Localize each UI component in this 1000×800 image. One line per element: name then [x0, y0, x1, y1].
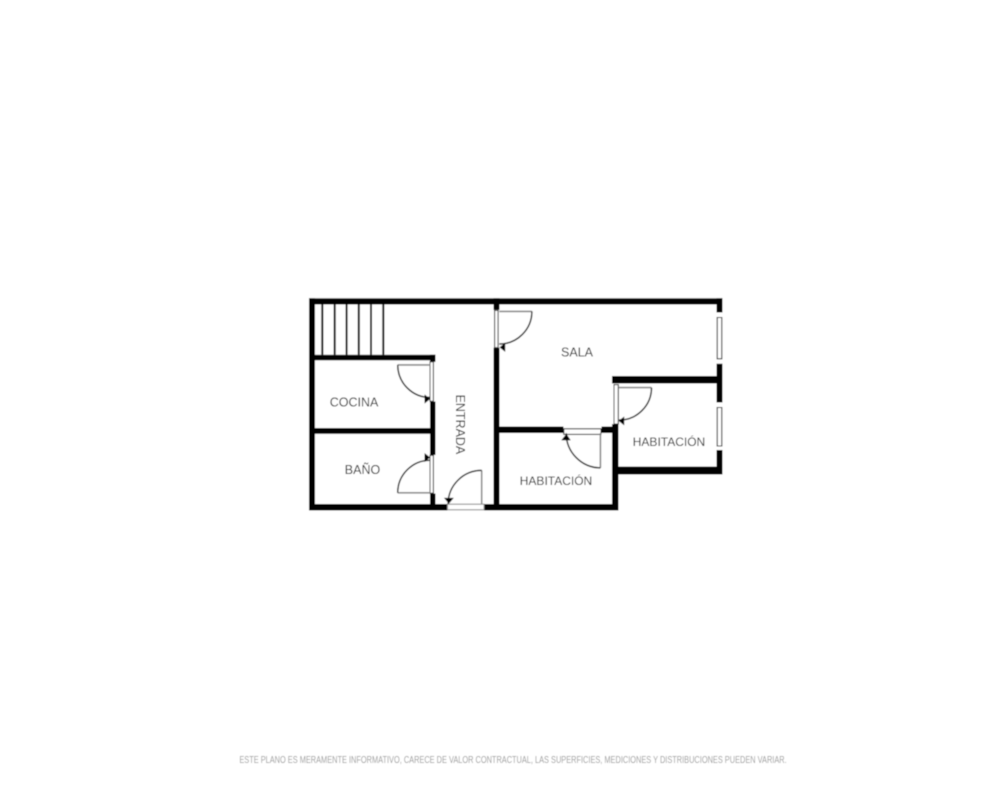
svg-text:SALA: SALA	[561, 346, 594, 360]
svg-text:HABITACIÓN: HABITACIÓN	[520, 473, 592, 488]
svg-text:HABITACIÓN: HABITACIÓN	[633, 434, 705, 449]
svg-text:COCINA: COCINA	[330, 396, 379, 410]
svg-text:ENTRADA: ENTRADA	[453, 395, 467, 455]
svg-text:ESTE PLANO ES MERAMENTE INFORM: ESTE PLANO ES MERAMENTE INFORMATIVO, CAR…	[239, 754, 786, 765]
svg-text:BAÑO: BAÑO	[345, 463, 381, 477]
